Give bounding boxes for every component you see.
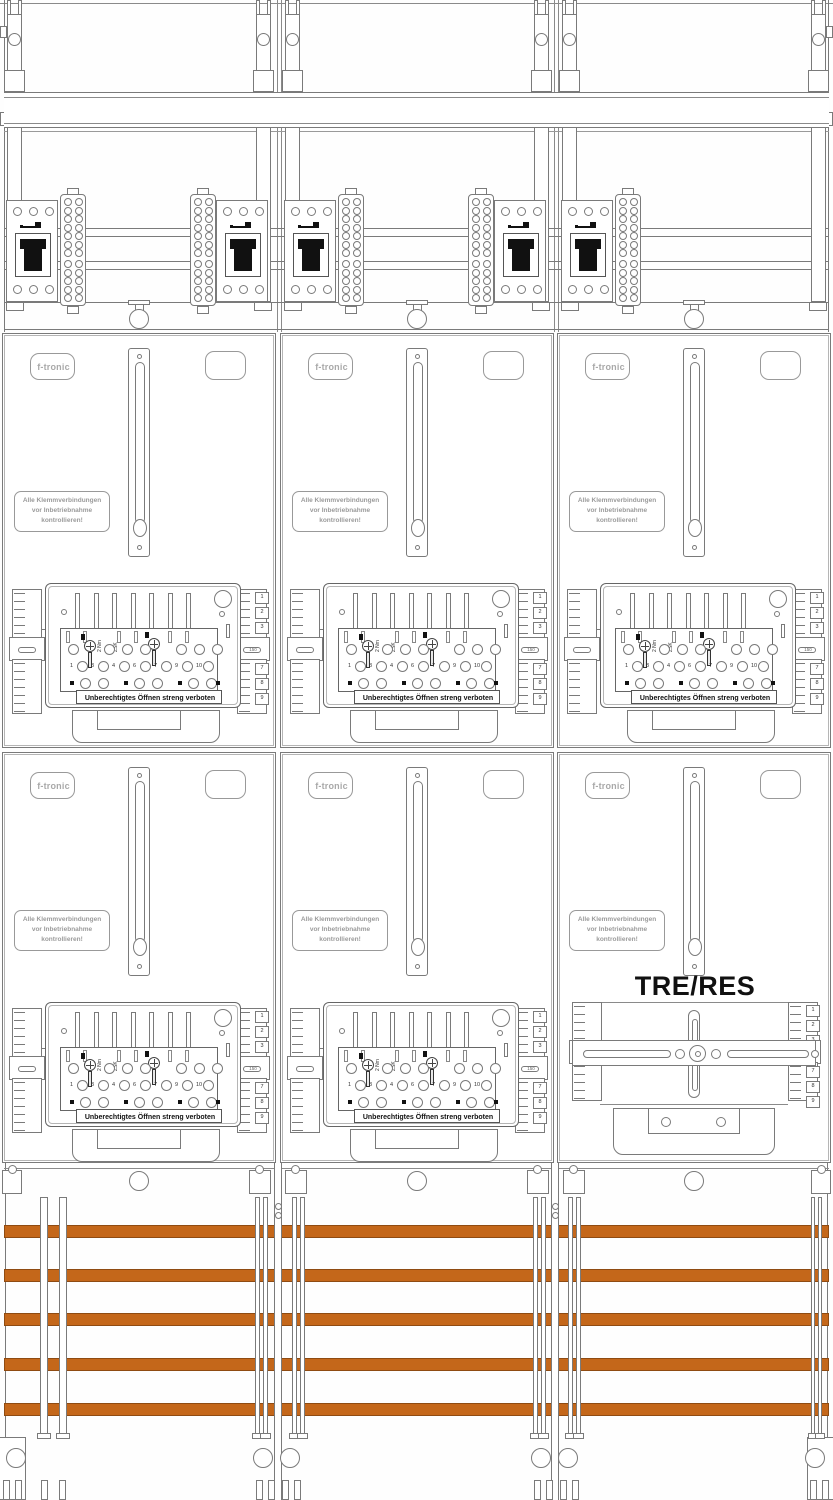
bar-hole bbox=[711, 1049, 721, 1059]
terminal-hole bbox=[483, 232, 491, 240]
terminal-hole bbox=[194, 294, 202, 302]
cable-comb-bottom bbox=[290, 1078, 320, 1133]
terminal-hole bbox=[439, 1080, 450, 1091]
field-slot bbox=[134, 631, 138, 643]
terminal-hole bbox=[122, 644, 133, 655]
terminal-hole bbox=[205, 224, 213, 232]
tray-step bbox=[809, 302, 827, 311]
bracket-hole bbox=[716, 1117, 726, 1127]
busbar-support-post bbox=[263, 1197, 268, 1437]
cable-comb-top: 123 bbox=[515, 1008, 545, 1058]
post-hole bbox=[563, 33, 576, 46]
bracket-hole bbox=[531, 1448, 551, 1468]
block-hole bbox=[339, 1028, 345, 1034]
terminal-hole bbox=[161, 661, 172, 672]
screw-slot bbox=[368, 642, 369, 650]
rail-slot-end bbox=[411, 938, 425, 956]
terminal-hole bbox=[75, 294, 83, 302]
terminal-dot bbox=[178, 1100, 182, 1104]
terminal-hole bbox=[64, 224, 72, 232]
terminal-hole bbox=[483, 286, 491, 294]
field-slot bbox=[168, 1050, 172, 1062]
comb-number-tab: 1 bbox=[533, 1011, 547, 1023]
terminal-hole bbox=[205, 215, 213, 223]
terminal-hole bbox=[342, 249, 350, 257]
block-slot-small bbox=[226, 1043, 230, 1057]
comb-teeth bbox=[14, 1082, 25, 1131]
terminal-hole bbox=[119, 1080, 130, 1091]
wall-tab bbox=[0, 26, 7, 38]
key-icon bbox=[35, 222, 41, 228]
lower-bracket-inner bbox=[375, 1129, 459, 1149]
comb-number-tab: 8 bbox=[533, 1097, 547, 1109]
block-hole bbox=[214, 590, 232, 608]
terminal-hole bbox=[64, 286, 72, 294]
comb-number-tab: 7 bbox=[255, 663, 269, 675]
comb-number-tab: 1 bbox=[533, 592, 547, 604]
terminal-hole bbox=[630, 269, 638, 277]
terminal-strip bbox=[338, 194, 364, 306]
lower-bracket-inner bbox=[652, 710, 736, 730]
bottom-prong bbox=[268, 1480, 275, 1500]
comb-teeth bbox=[14, 1012, 25, 1056]
comb-mid-label: 150 bbox=[242, 646, 264, 654]
block-hole bbox=[214, 1009, 232, 1027]
cable-comb-top bbox=[567, 589, 597, 639]
terminal-hole bbox=[75, 198, 83, 206]
terminal-hole bbox=[64, 269, 72, 277]
warning-text-line: vor Inbetriebnahme bbox=[293, 926, 387, 935]
cable-comb-right: 123150789 bbox=[237, 589, 268, 716]
terminal-dot bbox=[348, 1100, 352, 1104]
tray-step bbox=[561, 302, 579, 311]
fixing-hole bbox=[29, 207, 38, 216]
terminal-hole bbox=[483, 277, 491, 285]
profile-hole bbox=[552, 1203, 559, 1210]
terminal-hole bbox=[68, 644, 79, 655]
model-label: ZSK bbox=[114, 630, 122, 652]
terminal-dot bbox=[679, 681, 683, 685]
post-hole bbox=[535, 33, 548, 46]
cable-comb-top: 123 bbox=[237, 1008, 267, 1058]
terminal-hole bbox=[483, 269, 491, 277]
terminal-hole bbox=[619, 286, 627, 294]
key-icon bbox=[245, 222, 251, 228]
field-slot bbox=[168, 631, 172, 643]
comb-number-tab: 3 bbox=[255, 1041, 269, 1053]
cable-comb-top: 123 bbox=[515, 589, 545, 639]
warning-text-line: Alle Klemmverbindungen bbox=[293, 916, 387, 925]
terminal-hole bbox=[472, 1063, 483, 1074]
busbar bbox=[4, 1403, 829, 1416]
terminal-dot bbox=[771, 681, 775, 685]
terminal-hole bbox=[194, 249, 202, 257]
post-bracket bbox=[4, 70, 25, 92]
terminal-dot bbox=[124, 1100, 128, 1104]
terminal-hole bbox=[630, 232, 638, 240]
rail-hole bbox=[137, 545, 142, 550]
bracket-hole bbox=[661, 1117, 671, 1127]
terminal-hole bbox=[140, 1080, 151, 1091]
terminal-dot bbox=[494, 1100, 498, 1104]
warning-text-line: Alle Klemmverbindungen bbox=[15, 497, 109, 506]
terminal-hole bbox=[483, 249, 491, 257]
warning-text-line: Alle Klemmverbindungen bbox=[570, 916, 664, 925]
field-slot bbox=[134, 1050, 138, 1062]
comb-teeth bbox=[574, 1006, 585, 1040]
comb-teeth bbox=[790, 1006, 801, 1040]
terminal-dot bbox=[124, 681, 128, 685]
terminal-dot bbox=[402, 681, 406, 685]
bracket-notch bbox=[8, 1165, 17, 1174]
block-hole bbox=[774, 611, 780, 617]
terminal-hole bbox=[194, 232, 202, 240]
cabinet-wall-left bbox=[0, 0, 5, 332]
field-slot bbox=[740, 631, 744, 643]
terminal-hole bbox=[75, 260, 83, 268]
profile-hole bbox=[275, 1212, 282, 1219]
terminal-hole bbox=[382, 644, 393, 655]
cable-comb-left bbox=[12, 589, 43, 716]
terminal-hole bbox=[98, 661, 109, 672]
seal-screw bbox=[362, 640, 374, 652]
comb-number-tab: 2 bbox=[806, 1020, 820, 1032]
rail-hole bbox=[137, 964, 142, 969]
bracket-notch bbox=[533, 1165, 542, 1174]
terminal-hole bbox=[152, 1097, 163, 1108]
comb-slot bbox=[573, 647, 591, 653]
cabinet-wall-right bbox=[828, 0, 833, 332]
cable-comb-left bbox=[567, 589, 598, 716]
screw-slot bbox=[154, 640, 155, 648]
bottom-prong bbox=[572, 1480, 579, 1500]
screw-slot bbox=[90, 642, 91, 650]
bottom-prong bbox=[560, 1480, 567, 1500]
comb-number-tab: 9 bbox=[533, 693, 547, 705]
screw-slot bbox=[645, 642, 646, 650]
terminal-hole bbox=[75, 224, 83, 232]
field-slot bbox=[185, 631, 189, 643]
comb-number-tab: 8 bbox=[255, 1097, 269, 1109]
terminal-hole bbox=[188, 1097, 199, 1108]
tray-step bbox=[532, 302, 550, 311]
cable-comb-right: 123150789 bbox=[792, 589, 823, 716]
fixing-hole bbox=[45, 207, 54, 216]
cable-comb-top: 123 bbox=[237, 589, 267, 639]
block-slot-small bbox=[504, 1043, 508, 1057]
meter-cross-bar bbox=[572, 1040, 816, 1066]
seal-warning-plate: Unberechtigtes Öffnen streng verboten bbox=[76, 690, 222, 704]
bar-hole bbox=[811, 1050, 819, 1058]
warning-text-line: kontrollieren! bbox=[15, 936, 109, 945]
tray-edge bbox=[4, 1168, 829, 1169]
fixing-hole bbox=[45, 285, 54, 294]
vertical-adjust-rail bbox=[683, 767, 705, 976]
terminal-hole bbox=[342, 269, 350, 277]
terminal-hole bbox=[454, 644, 465, 655]
seal-plug-icon bbox=[234, 249, 252, 271]
terminal-hole bbox=[205, 232, 213, 240]
f-tronic-logo: f-tronic bbox=[585, 772, 630, 799]
din-rail-line bbox=[4, 123, 829, 124]
frame-post bbox=[811, 14, 826, 302]
terminal-hole bbox=[353, 215, 361, 223]
fixing-hole bbox=[323, 285, 332, 294]
terminal-hole bbox=[483, 215, 491, 223]
block-hole bbox=[219, 1030, 225, 1036]
model-label: ZSK bbox=[669, 630, 677, 652]
comb-number-tab: 7 bbox=[255, 1082, 269, 1094]
screw-slot bbox=[154, 1059, 155, 1067]
terminal-hole bbox=[75, 286, 83, 294]
busbar-support-post bbox=[811, 1197, 815, 1437]
busbar bbox=[4, 1313, 829, 1326]
terminal-hole bbox=[418, 1063, 429, 1074]
block-hole bbox=[339, 609, 345, 615]
cable-comb-top: 123 bbox=[788, 1002, 818, 1042]
terminal-hole bbox=[75, 269, 83, 277]
terminal-hole bbox=[104, 1063, 115, 1074]
terminal-hole bbox=[483, 294, 491, 302]
rail-slot-end bbox=[411, 519, 425, 537]
bar-hole bbox=[675, 1049, 685, 1059]
terminal-hole bbox=[353, 269, 361, 277]
post-bracket bbox=[808, 70, 829, 92]
terminal-dot bbox=[216, 681, 220, 685]
seal-warning-text: Unberechtigtes Öffnen streng verboten bbox=[632, 691, 778, 705]
rail-slot-end bbox=[133, 938, 147, 956]
terminal-hole bbox=[194, 241, 202, 249]
terminal-hole bbox=[653, 661, 664, 672]
wall-tab bbox=[826, 26, 833, 38]
terminal-hole bbox=[630, 294, 638, 302]
terminal-hole bbox=[205, 260, 213, 268]
comb-teeth bbox=[569, 663, 580, 712]
profile-hole bbox=[275, 1203, 282, 1210]
terminal-hole bbox=[75, 215, 83, 223]
logo-text: f-tronic bbox=[31, 354, 76, 381]
rail-slot bbox=[135, 362, 145, 524]
rail-slot bbox=[413, 362, 423, 524]
terminal-hole bbox=[205, 207, 213, 215]
column-boundary-line bbox=[554, 0, 555, 332]
terminal-hole bbox=[466, 1097, 477, 1108]
rail-slot bbox=[690, 781, 700, 943]
comb-bracket bbox=[9, 1056, 45, 1080]
seal-plug-icon bbox=[575, 239, 601, 249]
block-hole bbox=[616, 609, 622, 615]
bar-knob-center bbox=[695, 1051, 701, 1057]
screw-tab bbox=[81, 634, 85, 640]
terminal-dot bbox=[216, 1100, 220, 1104]
terminal-hole bbox=[749, 644, 760, 655]
terminal-hole bbox=[342, 294, 350, 302]
terminal-hole bbox=[203, 1080, 214, 1091]
terminal-hole bbox=[176, 644, 187, 655]
terminal-hole bbox=[472, 232, 480, 240]
cable-comb-bottom bbox=[290, 659, 320, 714]
warning-text-line: vor Inbetriebnahme bbox=[15, 507, 109, 516]
field-slot bbox=[446, 631, 450, 643]
block-hole bbox=[769, 590, 787, 608]
terminal-hole bbox=[460, 661, 471, 672]
bar-slot bbox=[727, 1050, 809, 1058]
terminal-strip bbox=[60, 194, 86, 306]
cable-comb-bottom: 789 bbox=[237, 1078, 267, 1133]
terminal-hole bbox=[205, 294, 213, 302]
terminal-hole bbox=[418, 1080, 429, 1091]
terminal-dot bbox=[494, 681, 498, 685]
terminal-hole bbox=[400, 1063, 411, 1074]
comb-number-tab: 3 bbox=[533, 1041, 547, 1053]
post-bracket bbox=[282, 70, 303, 92]
fixing-hole bbox=[239, 285, 248, 294]
comb-number-tab: 2 bbox=[255, 607, 269, 619]
label-window bbox=[205, 351, 246, 380]
terminal-hole bbox=[75, 241, 83, 249]
bracket-notch bbox=[291, 1165, 300, 1174]
terminal-hole bbox=[635, 678, 646, 689]
terminal-hole bbox=[77, 661, 88, 672]
screw-slot bbox=[90, 1061, 91, 1069]
screw-tab bbox=[423, 632, 427, 638]
vertical-adjust-rail bbox=[406, 348, 428, 557]
terminal-hole bbox=[630, 260, 638, 268]
comb-number-tab: 3 bbox=[533, 622, 547, 634]
lower-bracket-inner bbox=[648, 1108, 740, 1134]
meter-terminal-block: 2 NmZSK13467910Unberechtigtes Öffnen str… bbox=[323, 583, 519, 708]
label-window bbox=[205, 770, 246, 799]
comb-teeth bbox=[292, 593, 303, 637]
terminal-hole bbox=[134, 678, 145, 689]
terminal-hole bbox=[64, 232, 72, 240]
cable-comb-bottom: 789 bbox=[237, 659, 267, 714]
frame-line bbox=[4, 131, 829, 132]
terminal-hole bbox=[397, 661, 408, 672]
block-hole bbox=[497, 611, 503, 617]
terminal-hole bbox=[490, 1063, 501, 1074]
tray-step bbox=[6, 302, 24, 311]
post-hole bbox=[257, 33, 270, 46]
terminal-hole bbox=[630, 207, 638, 215]
seal-plug-icon bbox=[508, 239, 534, 249]
terminal-hole bbox=[205, 249, 213, 257]
cable-comb-bottom: 789 bbox=[792, 659, 822, 714]
rail-slot-end bbox=[688, 938, 702, 956]
terminal-strip-tab bbox=[345, 306, 357, 314]
seal-plug-icon bbox=[24, 249, 42, 271]
logo-text: f-tronic bbox=[586, 354, 631, 381]
cable-comb-top bbox=[290, 1008, 320, 1058]
comb-teeth bbox=[569, 593, 580, 637]
cable-comb-bottom: 789 bbox=[515, 1078, 545, 1133]
block-hole bbox=[492, 590, 510, 608]
terminal-dot bbox=[348, 681, 352, 685]
comb-number-tab: 9 bbox=[533, 1112, 547, 1124]
terminal-strip-tab bbox=[622, 306, 634, 314]
cable-comb-bottom bbox=[12, 1078, 42, 1133]
terminal-hole bbox=[731, 644, 742, 655]
terminal-hole bbox=[205, 277, 213, 285]
meter-panel-row-upper: f-tronicAlle Klemmverbindungenvor Inbetr… bbox=[0, 332, 833, 750]
terminal-hole bbox=[659, 644, 670, 655]
bracket-notch bbox=[569, 1165, 578, 1174]
fixing-hole bbox=[517, 207, 526, 216]
lower-bracket-inner bbox=[97, 1129, 181, 1149]
bracket-hole bbox=[805, 1448, 825, 1468]
din-rail-horizontal bbox=[4, 92, 829, 128]
comb-slot bbox=[296, 1066, 314, 1072]
terminal-hole bbox=[630, 215, 638, 223]
comb-number-tab: 2 bbox=[533, 607, 547, 619]
screw-tab bbox=[81, 1053, 85, 1059]
terminal-hole bbox=[472, 294, 480, 302]
comb-slot bbox=[18, 647, 36, 653]
terminal-dot bbox=[625, 681, 629, 685]
connector-rail-lower bbox=[4, 261, 829, 270]
terminal-hole bbox=[619, 215, 627, 223]
busbar-support-post bbox=[300, 1197, 305, 1437]
terminal-hole bbox=[342, 232, 350, 240]
terminal-dot bbox=[456, 681, 460, 685]
warning-text-line: Alle Klemmverbindungen bbox=[293, 497, 387, 506]
terminal-hole bbox=[140, 661, 151, 672]
meter-terminal-block: 2 NmZSK13467910Unberechtigtes Öffnen str… bbox=[45, 1002, 241, 1127]
vertical-adjust-rail bbox=[128, 767, 150, 976]
busbar-support-post bbox=[568, 1197, 573, 1437]
busbar bbox=[4, 1269, 829, 1282]
terminal-hole bbox=[412, 1097, 423, 1108]
tray-hole bbox=[407, 309, 427, 329]
warning-label: Alle Klemmverbindungenvor Inbetriebnahme… bbox=[14, 910, 110, 951]
terminal-hole bbox=[205, 198, 213, 206]
terminal-hole bbox=[472, 260, 480, 268]
lower-bracket-inner bbox=[375, 710, 459, 730]
terminal-hole bbox=[182, 661, 193, 672]
busbar-support-post bbox=[292, 1197, 297, 1437]
terminal-hole bbox=[64, 277, 72, 285]
warning-label: Alle Klemmverbindungenvor Inbetriebnahme… bbox=[14, 491, 110, 532]
post-foot bbox=[573, 1433, 584, 1439]
terminal-hole bbox=[194, 215, 202, 223]
meter-cabinet-drawing: f-tronicAlle Klemmverbindungenvor Inbetr… bbox=[0, 0, 833, 1500]
field-slot bbox=[723, 631, 727, 643]
terminal-hole bbox=[619, 260, 627, 268]
terminal-hole bbox=[397, 1080, 408, 1091]
field-slot bbox=[185, 1050, 189, 1062]
terminal-strip bbox=[190, 194, 216, 306]
comb-bracket bbox=[9, 637, 45, 661]
lower-bracket-inner bbox=[97, 710, 181, 730]
terminal-hole bbox=[342, 207, 350, 215]
terminal-hole bbox=[98, 1080, 109, 1091]
cable-comb-right: 123150789 bbox=[515, 1008, 546, 1135]
post-foot bbox=[260, 1433, 271, 1439]
seal-warning-text: Unberechtigtes Öffnen streng verboten bbox=[355, 1110, 501, 1124]
comb-mid-label: 150 bbox=[520, 1065, 542, 1073]
terminal-hole bbox=[119, 661, 130, 672]
busbar-support-post bbox=[40, 1197, 48, 1437]
cable-comb-top bbox=[290, 589, 320, 639]
post-foot bbox=[37, 1433, 51, 1439]
terminal-hole bbox=[98, 1097, 109, 1108]
vertical-adjust-rail bbox=[683, 348, 705, 557]
post-hole bbox=[812, 33, 825, 46]
comb-number-tab: 7 bbox=[806, 1066, 820, 1078]
comb-number-tab: 2 bbox=[255, 1026, 269, 1038]
label-window bbox=[483, 770, 524, 799]
terminal-hole bbox=[358, 678, 369, 689]
